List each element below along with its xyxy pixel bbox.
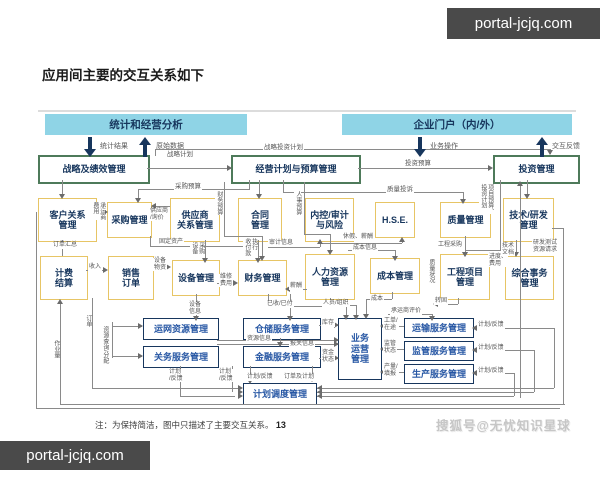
edge-label: 库存	[321, 320, 335, 327]
box-sales-order: 销售 订单	[108, 256, 154, 300]
box-transport-service: 运输服务管理	[404, 318, 474, 338]
box-plan-dispatch: 计划调度管理	[243, 383, 317, 405]
edge-label: 产量/ 填报	[383, 364, 399, 377]
edge-label: 收付款 执行	[243, 238, 257, 256]
arrowhead	[202, 258, 208, 263]
connector-line	[60, 302, 61, 404]
edge-label: 战略计划	[166, 151, 194, 158]
up-arrow-icon	[540, 145, 544, 157]
edge-label: 监管 状态	[383, 341, 397, 354]
page-number: 13	[276, 420, 286, 430]
edge-label: 资源信息	[246, 336, 272, 343]
edge-label: 计划/反馈	[477, 368, 505, 375]
connector-line	[283, 192, 463, 193]
connector-line	[262, 236, 263, 258]
connector-line	[217, 340, 338, 341]
edge-label: 供应商 /询价	[149, 208, 169, 221]
arrowhead	[524, 194, 530, 199]
arrowhead	[227, 165, 232, 171]
arrowhead	[462, 252, 468, 257]
arrowhead	[517, 181, 523, 186]
arrowhead	[334, 341, 339, 347]
connector-line	[554, 328, 555, 388]
edge-label: 作业量	[52, 340, 59, 358]
box-finance: 财务管理	[238, 260, 287, 296]
edge-label: 进度、 费用	[488, 254, 508, 267]
box-crm: 客户关系 管理	[38, 198, 97, 242]
box-cost: 成本管理	[370, 258, 420, 294]
box-billing: 计费 结算	[40, 256, 88, 300]
connector-line	[224, 182, 225, 236]
box-hse: H.S.E.	[375, 202, 415, 238]
connector-line	[534, 350, 535, 392]
edge-label: 固定资产	[158, 239, 184, 246]
edge-label: 项目预算、 投资计划	[479, 184, 493, 214]
edge-label: 设备 信息	[188, 302, 202, 315]
connector-line	[458, 298, 459, 304]
flow-label: 交互反馈	[552, 141, 580, 151]
arrowhead	[353, 315, 359, 320]
arrowhead	[59, 194, 65, 199]
arrowhead	[343, 315, 349, 320]
edge-label: 资金 状态	[321, 350, 335, 363]
connector-line	[283, 180, 284, 192]
edge-label: 计划/反馈	[246, 374, 274, 381]
slide: portal-jcjq.com portal-jcjq.com 搜狐号@无忧知识…	[0, 0, 600, 480]
connector-line	[150, 236, 151, 246]
connector-line	[36, 408, 560, 409]
box-hr: 人力资源 管理	[305, 254, 355, 300]
edge-label: 研发测试 资源请求	[532, 240, 558, 253]
box-financial-service: 金融服务管理	[243, 346, 321, 368]
edge-label: 设备 物资	[153, 258, 167, 271]
up-arrow-icon	[536, 137, 548, 145]
connector-line	[92, 388, 241, 389]
edge-label: 订单及计划	[283, 374, 315, 381]
footnote-text: 注：为保持简洁，图中只描述了主要交互关系。	[95, 420, 274, 430]
bar-enterprise-portal: 企业门户（内/外）	[342, 114, 572, 135]
connector-line	[563, 228, 564, 404]
connector-line	[500, 180, 501, 250]
edge-label: 维修 费用	[219, 274, 233, 287]
watermark-bottom-right: 搜狐号@无忧知识星球	[436, 415, 571, 434]
connector-line	[60, 404, 565, 405]
edge-label: 质量投诉	[386, 186, 414, 193]
arrowhead	[256, 194, 262, 199]
edge-label: 成本信息	[352, 245, 378, 252]
arrowhead	[138, 353, 143, 359]
edge-label: 订单	[84, 315, 91, 327]
down-arrow-icon	[84, 149, 96, 157]
flow-label: 统计结果	[100, 141, 128, 151]
arrowhead	[103, 267, 108, 273]
arrowhead	[135, 198, 141, 203]
box-equipment: 设备管理	[172, 260, 220, 296]
edge-label: 计划 /反馈	[218, 369, 234, 382]
box-business-plan-budget: 经营计划与预算管理	[231, 155, 361, 184]
connector-line	[552, 228, 563, 229]
edge-label: 设备 采购	[190, 242, 204, 254]
box-strategy-performance: 战略及绩效管理	[38, 155, 150, 184]
edge-label: 质量状况	[427, 259, 434, 283]
edge-label: 休假、薪酬	[342, 234, 374, 241]
box-general-affairs: 综合事务 管理	[505, 256, 554, 300]
connector-line	[317, 388, 554, 389]
edge-label: 人事预算	[294, 191, 301, 215]
up-arrow-icon	[139, 137, 151, 145]
arrowhead	[460, 199, 466, 204]
edge-label: 资源查询/分配	[101, 326, 108, 364]
arrowhead	[57, 299, 63, 304]
page-title: 应用间主要的交互关系如下	[42, 64, 204, 84]
box-tech-rd: 技术/研发 管理	[503, 198, 554, 242]
edge-label: 计划/反馈	[477, 345, 505, 352]
down-arrow-icon	[88, 137, 92, 149]
connector-line	[317, 396, 514, 397]
edge-label: 投资预算	[404, 160, 432, 167]
footnote: 注：为保持简洁，图中只描述了主要交互关系。 13	[95, 419, 286, 431]
divider	[38, 110, 576, 112]
connector-line	[465, 250, 501, 251]
box-project: 工程项目 管理	[440, 254, 490, 300]
up-arrow-icon	[143, 145, 147, 157]
arrowhead	[392, 256, 398, 261]
connector-line	[520, 183, 521, 398]
connector-line	[322, 243, 402, 244]
connector-line	[304, 234, 331, 235]
arrowhead	[363, 314, 369, 319]
box-supplier-relations: 供应商 关系管理	[170, 198, 220, 242]
connector-line	[514, 373, 515, 396]
box-network-resources: 运网资源管理	[143, 318, 219, 340]
edge-label: 成本	[370, 296, 384, 303]
box-supervision-service: 监管服务管理	[404, 341, 474, 361]
watermark-bottom-left: portal-jcjq.com	[0, 441, 150, 470]
down-arrow-icon	[414, 149, 426, 157]
edge-label: 财务预算	[215, 191, 222, 215]
arrowhead	[255, 258, 261, 263]
arrowhead	[193, 316, 199, 321]
edge-label: 承运商评价	[390, 308, 422, 315]
connector-line	[155, 206, 170, 207]
down-arrow-icon	[418, 137, 422, 149]
connector-line	[92, 298, 93, 388]
arrowhead	[287, 316, 293, 321]
edge-label: 报关信息	[289, 341, 315, 348]
box-business-operation: 业务 运营 管理	[338, 318, 382, 380]
edge-label: 订单汇总	[52, 242, 78, 249]
arrowhead	[238, 393, 243, 399]
connector-line	[249, 180, 250, 189]
box-customs-service: 关务服务管理	[143, 346, 219, 368]
bar-stats-analysis: 统计和经营分析	[45, 114, 247, 135]
connector-line	[304, 182, 305, 234]
connector-line	[224, 236, 263, 237]
arrowhead	[399, 237, 405, 242]
edge-label: 人员/组织	[322, 300, 350, 307]
connector-line	[205, 240, 206, 260]
edge-label: 工单/ 在途	[383, 318, 399, 331]
connector-line	[392, 292, 393, 299]
arrowhead	[317, 393, 322, 399]
connector-line	[112, 322, 113, 358]
arrowhead	[233, 280, 238, 286]
box-investment: 投资管理	[493, 155, 580, 184]
box-production-service: 生产服务管理	[404, 364, 474, 384]
connector-line	[155, 149, 550, 150]
arrowhead	[138, 323, 143, 329]
edge-label: 审计信息	[268, 240, 294, 247]
arrowhead	[277, 342, 283, 347]
edge-label: 工程采购	[437, 242, 463, 249]
watermark-top-right: portal-jcjq.com	[447, 8, 600, 39]
edge-label: 薪酬	[289, 283, 303, 290]
arrowhead	[429, 316, 435, 321]
box-procurement: 采购管理	[107, 202, 152, 238]
connector-line	[147, 168, 231, 169]
arrowhead	[317, 239, 323, 244]
connector-line	[180, 396, 235, 397]
arrowhead	[488, 165, 493, 171]
connector-line	[317, 392, 534, 393]
edge-label: 计划 /反馈	[168, 369, 184, 382]
connector-line	[36, 212, 37, 408]
connector-line	[465, 236, 466, 248]
edge-label: 转固	[434, 298, 448, 305]
edge-label: 计划/反馈	[477, 322, 505, 329]
connector-line	[268, 247, 320, 248]
flow-label: 原始数据	[156, 141, 184, 151]
connector-line	[358, 168, 491, 169]
edge-label: 采购预算	[174, 183, 202, 190]
edge-label: 战略投资计划	[263, 144, 304, 151]
edge-label: 已收/已付	[266, 301, 294, 308]
edge-label: 收入	[88, 264, 102, 271]
edge-label: 承运商 费用	[91, 202, 105, 220]
flow-label: 业务操作	[430, 141, 458, 151]
arrowhead	[327, 250, 333, 255]
